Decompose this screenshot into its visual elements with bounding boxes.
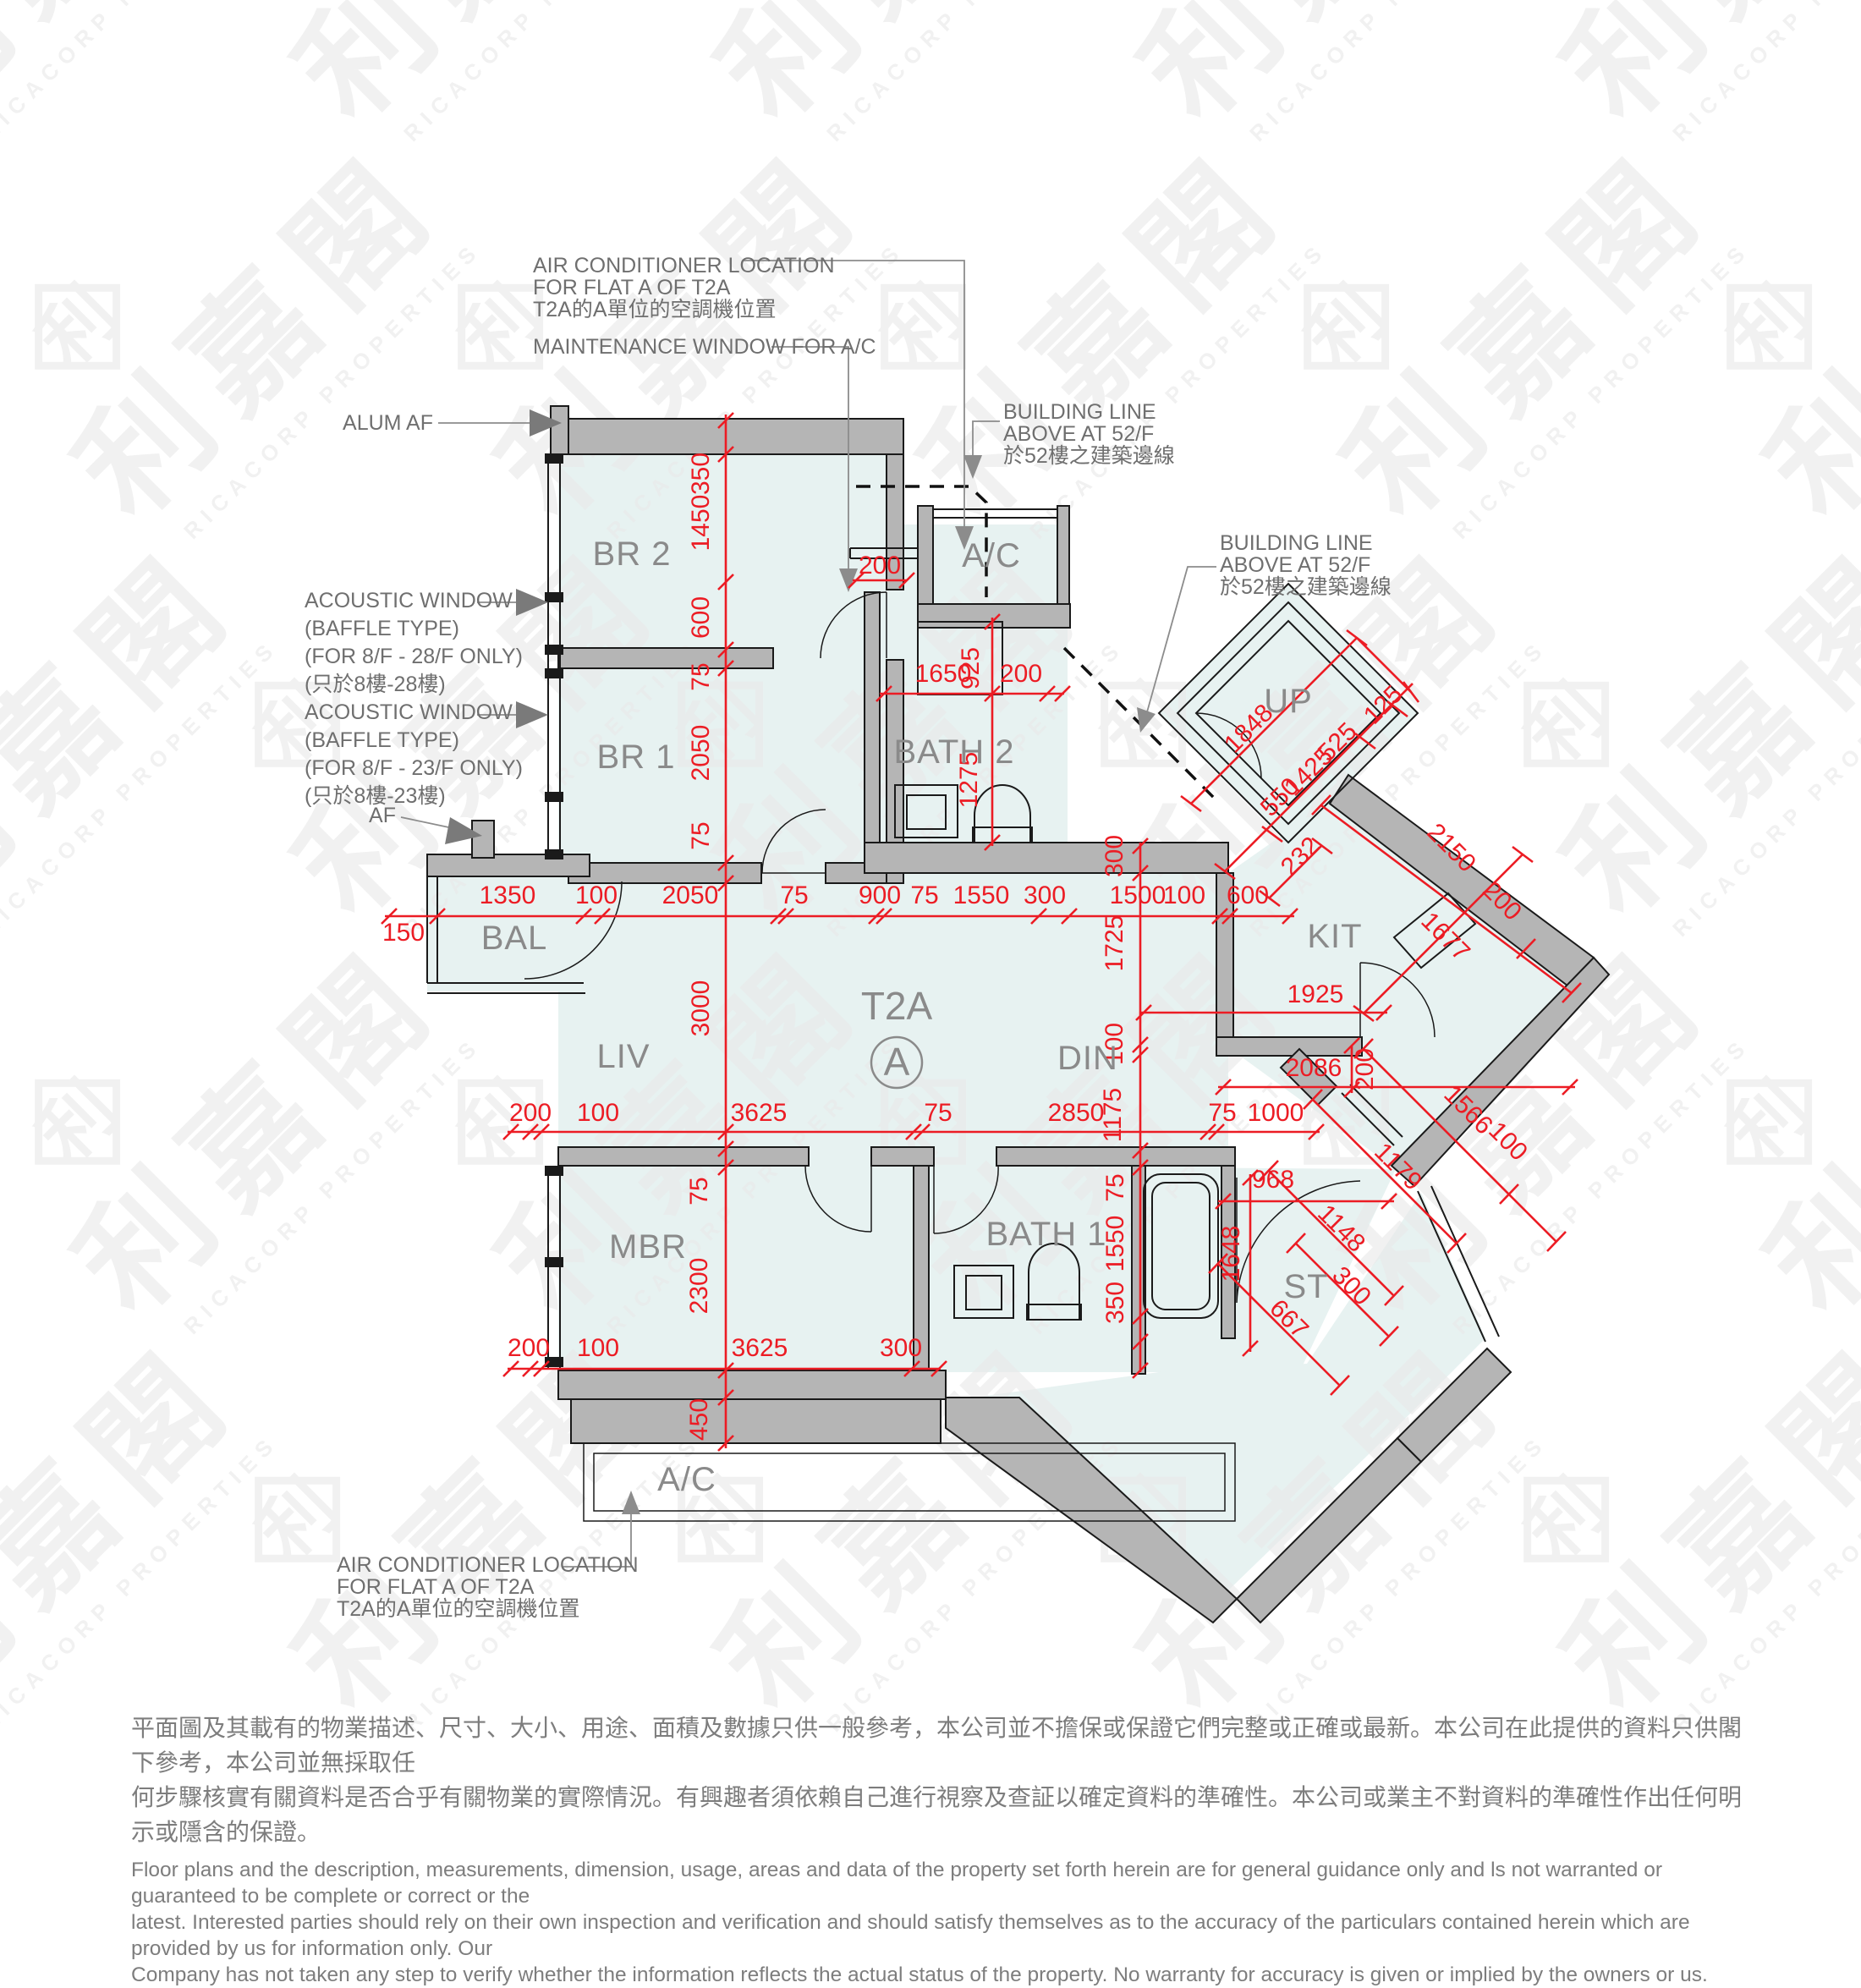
annotation-building-line-2: ABOVE AT 52/F — [1220, 553, 1370, 577]
ricacorp-watermark: 利利嘉閣RICACORP PROPERTIES — [1456, 1236, 1861, 1759]
room-label-st: ST — [1283, 1268, 1328, 1305]
annotation-building-line-1: BUILDING LINE — [1003, 400, 1156, 424]
room-label-mbr: MBR — [609, 1228, 687, 1266]
annotation-ac-location-top: FOR FLAT A OF T2A — [533, 276, 731, 299]
annotation-ac-location-bottom: AIR CONDITIONER LOCATION — [337, 1553, 639, 1577]
dimension-label: 200 — [508, 1334, 550, 1362]
dimension-label: 1500 — [1110, 881, 1167, 909]
ricacorp-watermark: 利利嘉閣RICACORP PROPERTIES — [1456, 0, 1861, 168]
dimension-label: 200 — [1000, 660, 1042, 688]
ricacorp-watermark: 利利嘉閣RICACORP PROPERTIES — [0, 0, 288, 168]
dimension-label: 150 — [382, 919, 425, 947]
dimension-label: 1550 — [953, 881, 1010, 909]
disclaimer-zh-line1: 平面圖及其載有的物業描述、尺寸、大小、用途、面積及數據只供一般參考，本公司並不擔… — [131, 1711, 1764, 1780]
dimension-label: 75 — [687, 821, 715, 849]
disclaimer-en-line2: latest. Interested parties should rely o… — [131, 1909, 1764, 1962]
dimension-label: 1725 — [1101, 915, 1128, 972]
dimension-label: 75 — [924, 1099, 952, 1127]
dimension-label: 600 — [687, 596, 715, 639]
room-label-up: UP — [1264, 683, 1313, 720]
dimension-label: 350 — [687, 453, 715, 495]
annotation-building-line-1: ABOVE AT 52/F — [1003, 422, 1154, 446]
dimension-label: 300 — [880, 1334, 922, 1362]
disclaimer-en-line1: Floor plans and the description, measure… — [131, 1857, 1764, 1909]
dimension-label: 300 — [1101, 835, 1128, 877]
dimension-label: 925 — [957, 647, 985, 689]
dimension-label: 1450 — [687, 495, 715, 552]
dimension-label: 100 — [575, 881, 618, 909]
annotation-building-line-2: BUILDING LINE — [1220, 531, 1373, 555]
annotation-alum-af: ALUM AF — [343, 411, 433, 435]
floor-plan-drawing: 利利嘉閣RICACORP PROPERTIES利利嘉閣RICACORP PROP… — [0, 0, 1861, 1861]
annotation-ac-location-bottom: FOR FLAT A OF T2A — [337, 1575, 535, 1599]
ricacorp-watermark: 利利嘉閣RICACORP PROPERTIES — [1033, 0, 1556, 168]
floor-plan-page: { "colors":{"dimension_red":"#ec1c24","w… — [0, 0, 1861, 1861]
dimension-label: 2050 — [687, 725, 715, 782]
dimension-label: 300 — [1024, 881, 1066, 909]
dimension-label: 100 — [577, 1334, 619, 1362]
dimension-label: 350 — [1101, 1282, 1129, 1324]
dimension-label: 2850 — [1048, 1099, 1105, 1127]
dimension-label: 200 — [859, 552, 901, 579]
dimension-label: 75 — [780, 881, 808, 909]
room-label-din: DIN — [1057, 1040, 1118, 1077]
annotation-acoustic-window-2: (BAFFLE TYPE) — [305, 728, 459, 752]
dimension-label: 1000 — [1248, 1099, 1304, 1127]
annotation-ac-location-top: AIR CONDITIONER LOCATION — [533, 254, 835, 277]
room-label-br-1: BR 1 — [597, 739, 676, 776]
dimension-label: 968 — [1252, 1166, 1294, 1194]
annotation-acoustic-window-1: (只於8樓-28樓) — [305, 673, 446, 696]
dimension-label: 75 — [1208, 1099, 1236, 1127]
room-label-br-2: BR 2 — [593, 535, 672, 573]
dimension-label: 3625 — [732, 1334, 788, 1362]
disclaimer-en-line3: Company has not taken any step to verify… — [131, 1962, 1764, 1988]
dimension-label: 1925 — [1287, 980, 1344, 1008]
dimension-label: 2050 — [662, 881, 719, 909]
annotation-acoustic-window-1: (FOR 8/F - 28/F ONLY) — [305, 645, 523, 668]
dimension-label: 1350 — [480, 881, 536, 909]
dimension-label: 3000 — [687, 980, 715, 1037]
unit-code: T2A — [861, 984, 933, 1028]
room-label-a-c: A/C — [657, 1461, 716, 1498]
annotation-acoustic-window-2: (FOR 8/F - 23/F ONLY) — [305, 756, 523, 780]
dimension-label: 200 — [1351, 1048, 1379, 1090]
dimension-label: 1648 — [1217, 1226, 1245, 1282]
annotation-maintenance-window: MAINTENANCE WINDOW FOR A/C — [533, 335, 876, 359]
room-label-kit: KIT — [1307, 918, 1362, 955]
annotation-building-line-1: 於52樓之建築邊線 — [1003, 444, 1175, 468]
ricacorp-watermark: 利利嘉閣RICACORP PROPERTIES — [610, 0, 1133, 168]
dimension-label: 75 — [1101, 1173, 1129, 1201]
room-label-bal: BAL — [481, 920, 548, 957]
room-label-a-c: A/C — [962, 537, 1021, 574]
annotation-acoustic-window-1: (BAFFLE TYPE) — [305, 617, 459, 640]
dimension-label: 3625 — [731, 1099, 788, 1127]
dimension-label: 2086 — [1286, 1054, 1342, 1082]
dimension-label: 900 — [859, 881, 901, 909]
annotation-ac-location-top: T2A的A單位的空調機位置 — [533, 298, 777, 321]
dimension-label: 75 — [687, 662, 715, 690]
disclaimer-footer: 平面圖及其載有的物業描述、尺寸、大小、用途、面積及數據只供一般參考，本公司並不擔… — [131, 1711, 1764, 1988]
ricacorp-watermark: 利利嘉閣RICACORP PROPERTIES — [187, 0, 710, 168]
dimension-label: 200 — [509, 1099, 552, 1127]
annotation-building-line-2: 於52樓之建築邊線 — [1220, 575, 1392, 599]
annotation-acoustic-window-2: ACOUSTIC WINDOW — [305, 700, 513, 724]
dimension-label: 2300 — [685, 1258, 713, 1315]
dimension-label: 450 — [685, 1398, 713, 1441]
ricacorp-watermark: 利利嘉閣RICACORP PROPERTIES — [1456, 441, 1861, 964]
annotation-af: AF — [369, 804, 396, 827]
annotation-ac-location-bottom: T2A的A單位的空調機位置 — [337, 1597, 580, 1621]
annotation-acoustic-window-1: ACOUSTIC WINDOW — [305, 589, 513, 612]
disclaimer-zh-line2: 何步驟核實有關資料是否合乎有關物業的實際情況。有興趣者須依賴自己進行視察及查証以… — [131, 1780, 1764, 1849]
dimension-label: 600 — [1227, 881, 1269, 909]
flat-letter: A — [884, 1040, 910, 1084]
dimension-label: 100 — [1163, 881, 1205, 909]
dimension-label: 75 — [910, 881, 938, 909]
dimension-label: 100 — [577, 1099, 619, 1127]
room-label-bath-1: BATH 1 — [985, 1216, 1106, 1253]
dimension-label: 75 — [685, 1177, 713, 1205]
room-label-liv: LIV — [596, 1038, 650, 1075]
room-label-bath-2: BATH 2 — [893, 733, 1014, 771]
